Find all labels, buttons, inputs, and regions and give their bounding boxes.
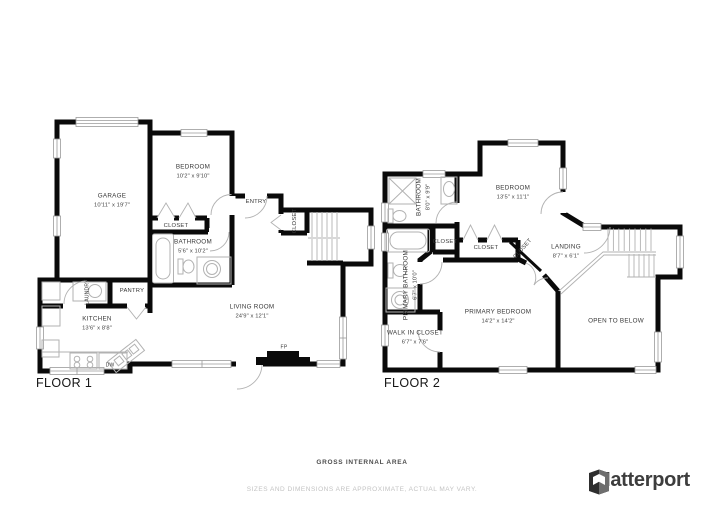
floor2-doors (418, 192, 610, 352)
room-label-landing: LANDING 8'7" x 6'1" (551, 244, 581, 261)
floorplan-drawing (0, 0, 720, 508)
room-label-bedroom2: BEDROOM 13'5" x 11'1" (496, 185, 530, 202)
matterport-logo: Matterport (587, 469, 690, 492)
floorplan-page: GARAGE 10'11" x 19'7" BEDROOM 10'2" x 9'… (0, 0, 720, 508)
label-dishwasher: DW (106, 363, 115, 370)
room-label-bathroom2: BATHROOM 8'0" x 9'9" (416, 178, 433, 216)
room-label-pantry: PANTRY (120, 287, 144, 295)
room-label-hall-closet: CLOSET (291, 209, 299, 234)
disclaimer-text: SIZES AND DIMENSIONS ARE APPROXIMATE, AC… (247, 486, 477, 493)
room-label-bedroom1: BEDROOM 10'2" x 9'10" (176, 164, 210, 181)
room-label-closet-b: CLOSET (474, 244, 499, 252)
room-label-laundry: LAUNDRY (85, 279, 92, 305)
room-label-walk-in-closet: WALK IN CLOSET 6'7" x 7'6" (387, 330, 443, 347)
room-label-primary-bedroom: PRIMARY BEDROOM 14'2" x 14'2" (465, 309, 532, 326)
floor1-fireplace (256, 351, 310, 365)
gross-internal-area-title: GROSS INTERNAL AREA (316, 459, 407, 466)
room-label-living-room: LIVING ROOM 24'9" x 12'1" (230, 304, 275, 321)
floor2-title: FLOOR 2 (384, 376, 440, 390)
room-label-bedroom-closet: CLOSET (164, 222, 189, 230)
floor1-door-gaps (209, 192, 267, 368)
matterport-logo-icon (587, 469, 611, 497)
room-label-bathroom1: BATHROOM 5'6" x 10'2" (174, 239, 212, 256)
floor1-title: FLOOR 1 (36, 376, 92, 390)
room-label-open-to-below: OPEN TO BELOW (588, 318, 644, 327)
floor1-stairs (308, 212, 340, 261)
room-label-kitchen: KITCHEN 13'6" x 8'8" (82, 316, 112, 333)
room-label-closet-a: CLOSET (433, 238, 458, 246)
room-label-primary-bathroom: PRIMARY BATHROOM 6'7" x 10'0" (403, 250, 420, 320)
label-fireplace: FP (281, 345, 288, 352)
room-label-garage: GARAGE 10'11" x 19'7" (94, 193, 130, 210)
room-label-entry: ENTRY (246, 198, 267, 206)
